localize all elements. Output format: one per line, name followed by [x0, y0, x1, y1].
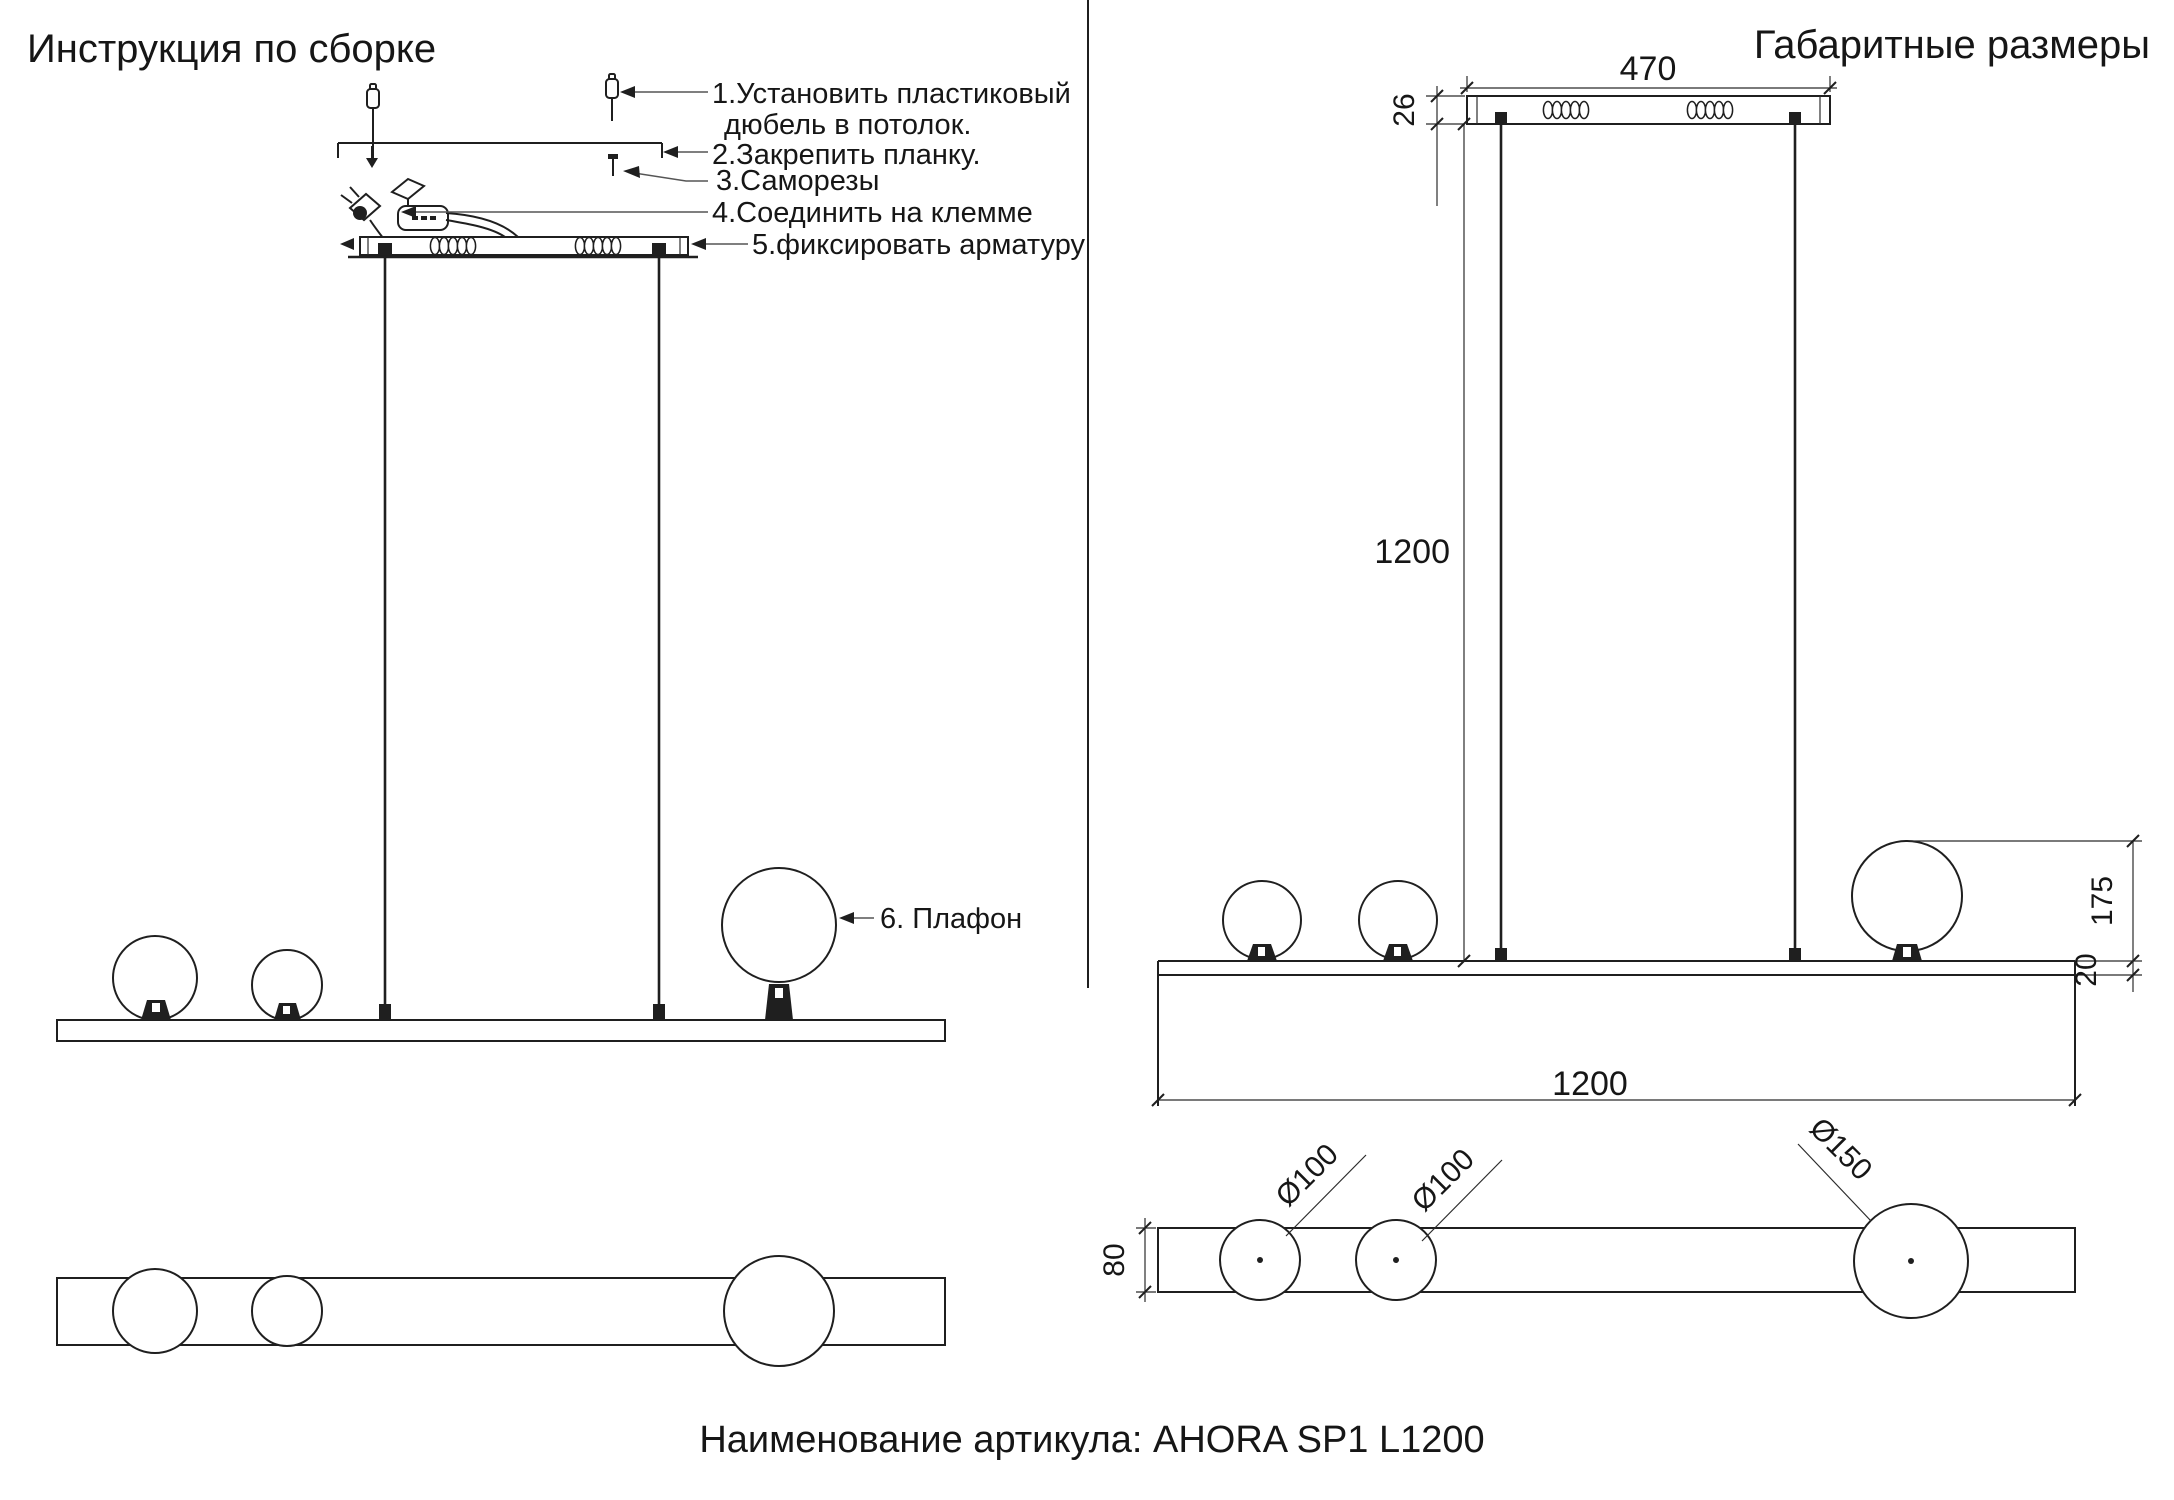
dimension-bar-depth: 80	[1098, 1218, 1156, 1302]
dimension-bar-thickness: 20	[2070, 953, 2142, 992]
dowel-icon	[606, 74, 618, 98]
wire-mount	[652, 243, 666, 255]
step4-label: 4.Соединить на клемме	[712, 197, 1033, 229]
article-caption: Наименование артикула: AHORA SP1 L1200	[699, 1419, 1484, 1461]
diameter-callouts: Ø100 Ø100 Ø150	[1270, 1112, 1879, 1241]
center-dot	[1908, 1258, 1914, 1264]
spring-icon	[575, 238, 620, 255]
left-panel-title: Инструкция по сборке	[27, 27, 436, 71]
dimension-suspension-height: 1200	[1374, 118, 1470, 967]
bar-front-view	[1158, 961, 2075, 975]
bar-bottom-view	[1158, 1204, 2075, 1318]
arrow-icon	[691, 238, 706, 250]
dim-80: 80	[1098, 1243, 1131, 1276]
dowel-icon	[367, 84, 379, 108]
screw-icon	[608, 154, 618, 176]
dim-dia-150: Ø150	[1803, 1112, 1878, 1187]
wire-bar-connector	[653, 1004, 665, 1020]
spring-icon	[1687, 102, 1732, 119]
spring-icon	[430, 238, 475, 255]
mount-bracket-icon	[392, 179, 424, 199]
left-panel-assembly-instructions: Инструкция по сборке	[27, 27, 1086, 1366]
dim-1200-horizontal: 1200	[1552, 1065, 1628, 1103]
canopy-assembly	[340, 179, 698, 257]
shade-circle	[724, 1256, 834, 1366]
arrow-icon	[620, 86, 635, 98]
wire-mount	[1789, 112, 1801, 124]
dim-1200-vertical: 1200	[1374, 533, 1450, 571]
dimension-canopy-height: 26	[1388, 86, 1465, 206]
step1-label-line1: 1.Установить пластиковый	[712, 78, 1071, 110]
step5-label: 5.фиксировать арматуру	[752, 229, 1086, 261]
arrow-icon	[663, 146, 678, 158]
spring-icon	[1543, 102, 1588, 119]
shade-circle	[252, 1276, 322, 1346]
dim-dia-100-first: Ø100	[1270, 1138, 1345, 1213]
shade-circle	[113, 1269, 197, 1353]
dim-dia-100-second: Ø100	[1406, 1143, 1481, 1218]
center-dot	[1257, 1257, 1263, 1263]
right-panel-title: Габаритные размеры	[1754, 23, 2150, 67]
dim-470: 470	[1620, 50, 1677, 88]
center-dot	[1393, 1257, 1399, 1263]
arrow-icon	[623, 166, 640, 178]
step6-label: 6. Плафон	[880, 903, 1022, 935]
right-panel-dimensions: Габаритные размеры 470 26	[1098, 23, 2150, 1318]
wire-bar-connector	[1495, 948, 1507, 961]
drawing-canvas: Инструкция по сборке	[0, 0, 2174, 1500]
canopy	[1467, 96, 1830, 124]
bar-bottom-view	[57, 1256, 945, 1366]
wire-bar-connector	[379, 1004, 391, 1020]
instruction-sheet: Инструкция по сборке	[0, 0, 2174, 1500]
wire	[446, 213, 518, 237]
wire-mount	[378, 243, 392, 255]
canopy	[360, 237, 688, 255]
arrow-icon	[839, 912, 854, 924]
dim-26: 26	[1388, 93, 1421, 126]
shade-sphere-large	[722, 868, 836, 982]
wire-bar-connector	[1789, 948, 1801, 961]
shade-sphere-large	[1852, 841, 1962, 951]
bar-side-view	[57, 1020, 945, 1041]
step3-label: 3.Саморезы	[716, 165, 879, 197]
dim-175: 175	[2086, 876, 2119, 926]
step1-label-line2: дюбель в потолок.	[724, 109, 971, 141]
arrow-icon	[340, 238, 354, 250]
dim-20: 20	[2070, 953, 2103, 986]
step-callouts: 1.Установить пластиковый дюбель в потоло…	[401, 78, 1086, 935]
dimension-bar-length: 1200	[1152, 961, 2081, 1106]
screw-icon	[366, 146, 378, 168]
wire-mount	[1495, 112, 1507, 124]
